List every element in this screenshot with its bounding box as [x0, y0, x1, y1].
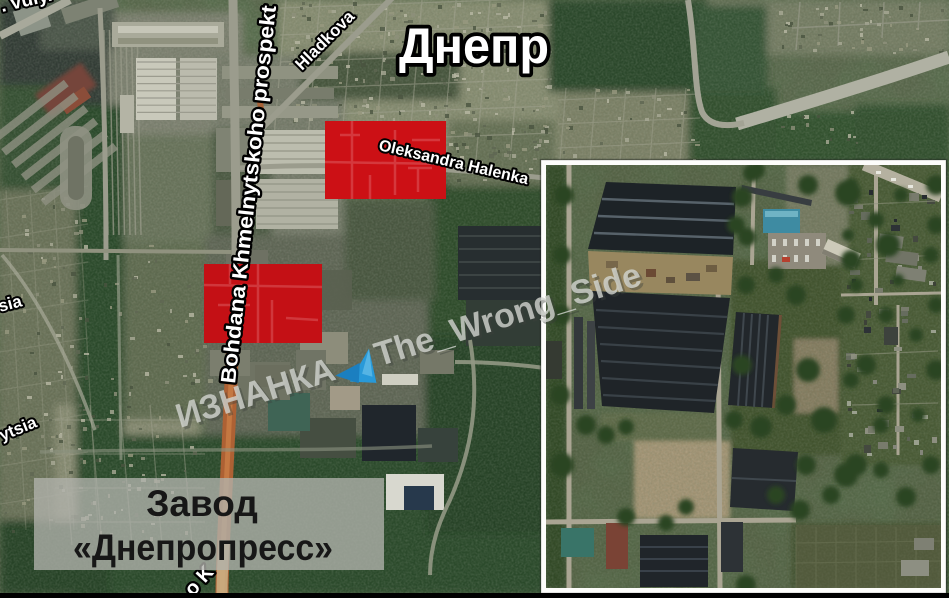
svg-text:Днепр: Днепр [399, 18, 549, 74]
svg-text:«Днепропресс»: «Днепропресс» [73, 527, 333, 568]
svg-text:Завод: Завод [146, 483, 258, 524]
